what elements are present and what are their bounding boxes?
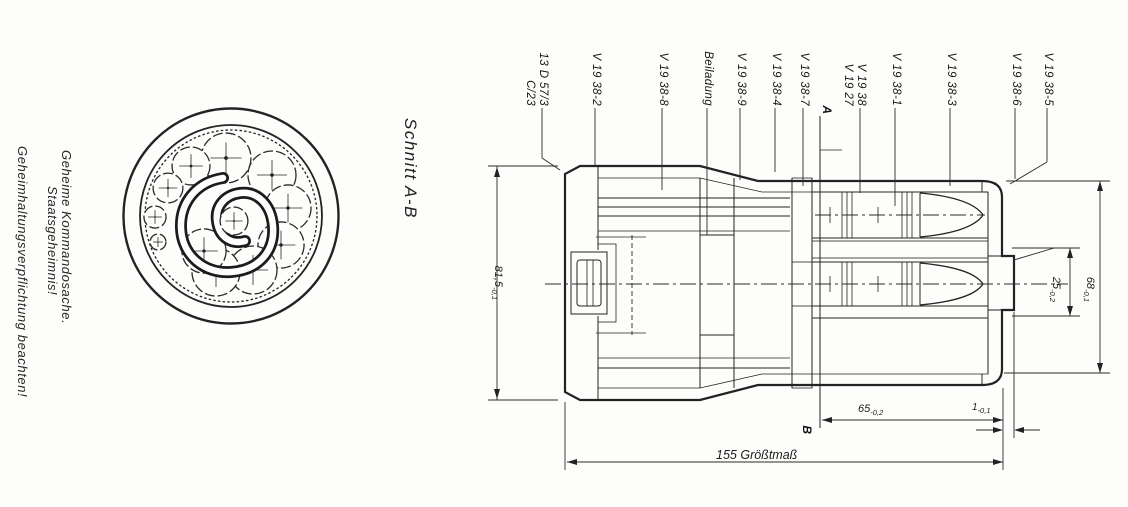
dim-end-step: 1-0,1 [972,402,991,413]
beiladung-charge [700,235,734,335]
dim-overall-length: 155 Größtmaß [716,448,797,462]
end-plug [988,256,1014,310]
step-wall-upper [792,178,812,262]
tail-interior [812,192,988,374]
part-label-v1938-8: V 19 38-8 [656,53,669,106]
top-wall [598,166,982,192]
section-view-title: Schnitt A-B [400,118,420,219]
section-marker-b: B [800,425,814,434]
center-pellet [220,207,248,235]
body-interior [596,178,812,388]
part-label-13d573: 13 D 57/3 C/23 [523,53,549,106]
classification-line-2: Staatsgeheimnis! [45,186,60,295]
part-label-v1938-3: V 19 38-3 [944,53,957,106]
dim-body-diameter: 81,5-0,1 [492,266,504,300]
part-label-beiladung: Beiladung [701,51,714,106]
longitudinal-section-view [488,108,1110,470]
dim-tail-diameter: 68-0,1 [1084,277,1096,302]
step-wall-lower [792,306,812,388]
section-cut-line [820,116,842,428]
part-label-v1938-5: V 19 38-5 [1041,53,1054,106]
part-label-v1938-1: V 19 38-1 [889,53,902,106]
section-marker-a: A [820,105,834,114]
dimension-lines [488,166,1110,470]
part-label-v1938-9: V 19 38-9 [734,53,747,106]
dim-tail-length: 65-0,2 [858,403,883,415]
part-label-v1938-2: V 19 38-2 [589,53,602,106]
blueprint-page: Geheime Kommandosache. Staatsgeheimnis! … [0,0,1128,507]
part-label-v1938-v1927: V 19 38 V 19 27 [841,64,867,106]
part-label-v1938-7: V 19 38-7 [797,53,810,106]
bottom-wall [598,374,982,400]
central-tube-wall [812,241,988,258]
part-label-v1938-4: V 19 38-4 [769,53,782,106]
cross-section-view [124,109,339,324]
classification-line-3: Geheimhaltungsverpflichtung beachten! [15,146,30,397]
technical-drawing [0,0,1128,507]
end-wall-lower [982,310,1002,385]
dim-plug-diameter: 25-0,2 [1050,277,1062,302]
classification-line-1: Geheime Kommandosache. [59,150,74,324]
fuze-pocket [569,250,609,316]
upper-tube-pellets [815,192,985,238]
part-label-v1938-6: V 19 38-6 [1009,53,1022,106]
